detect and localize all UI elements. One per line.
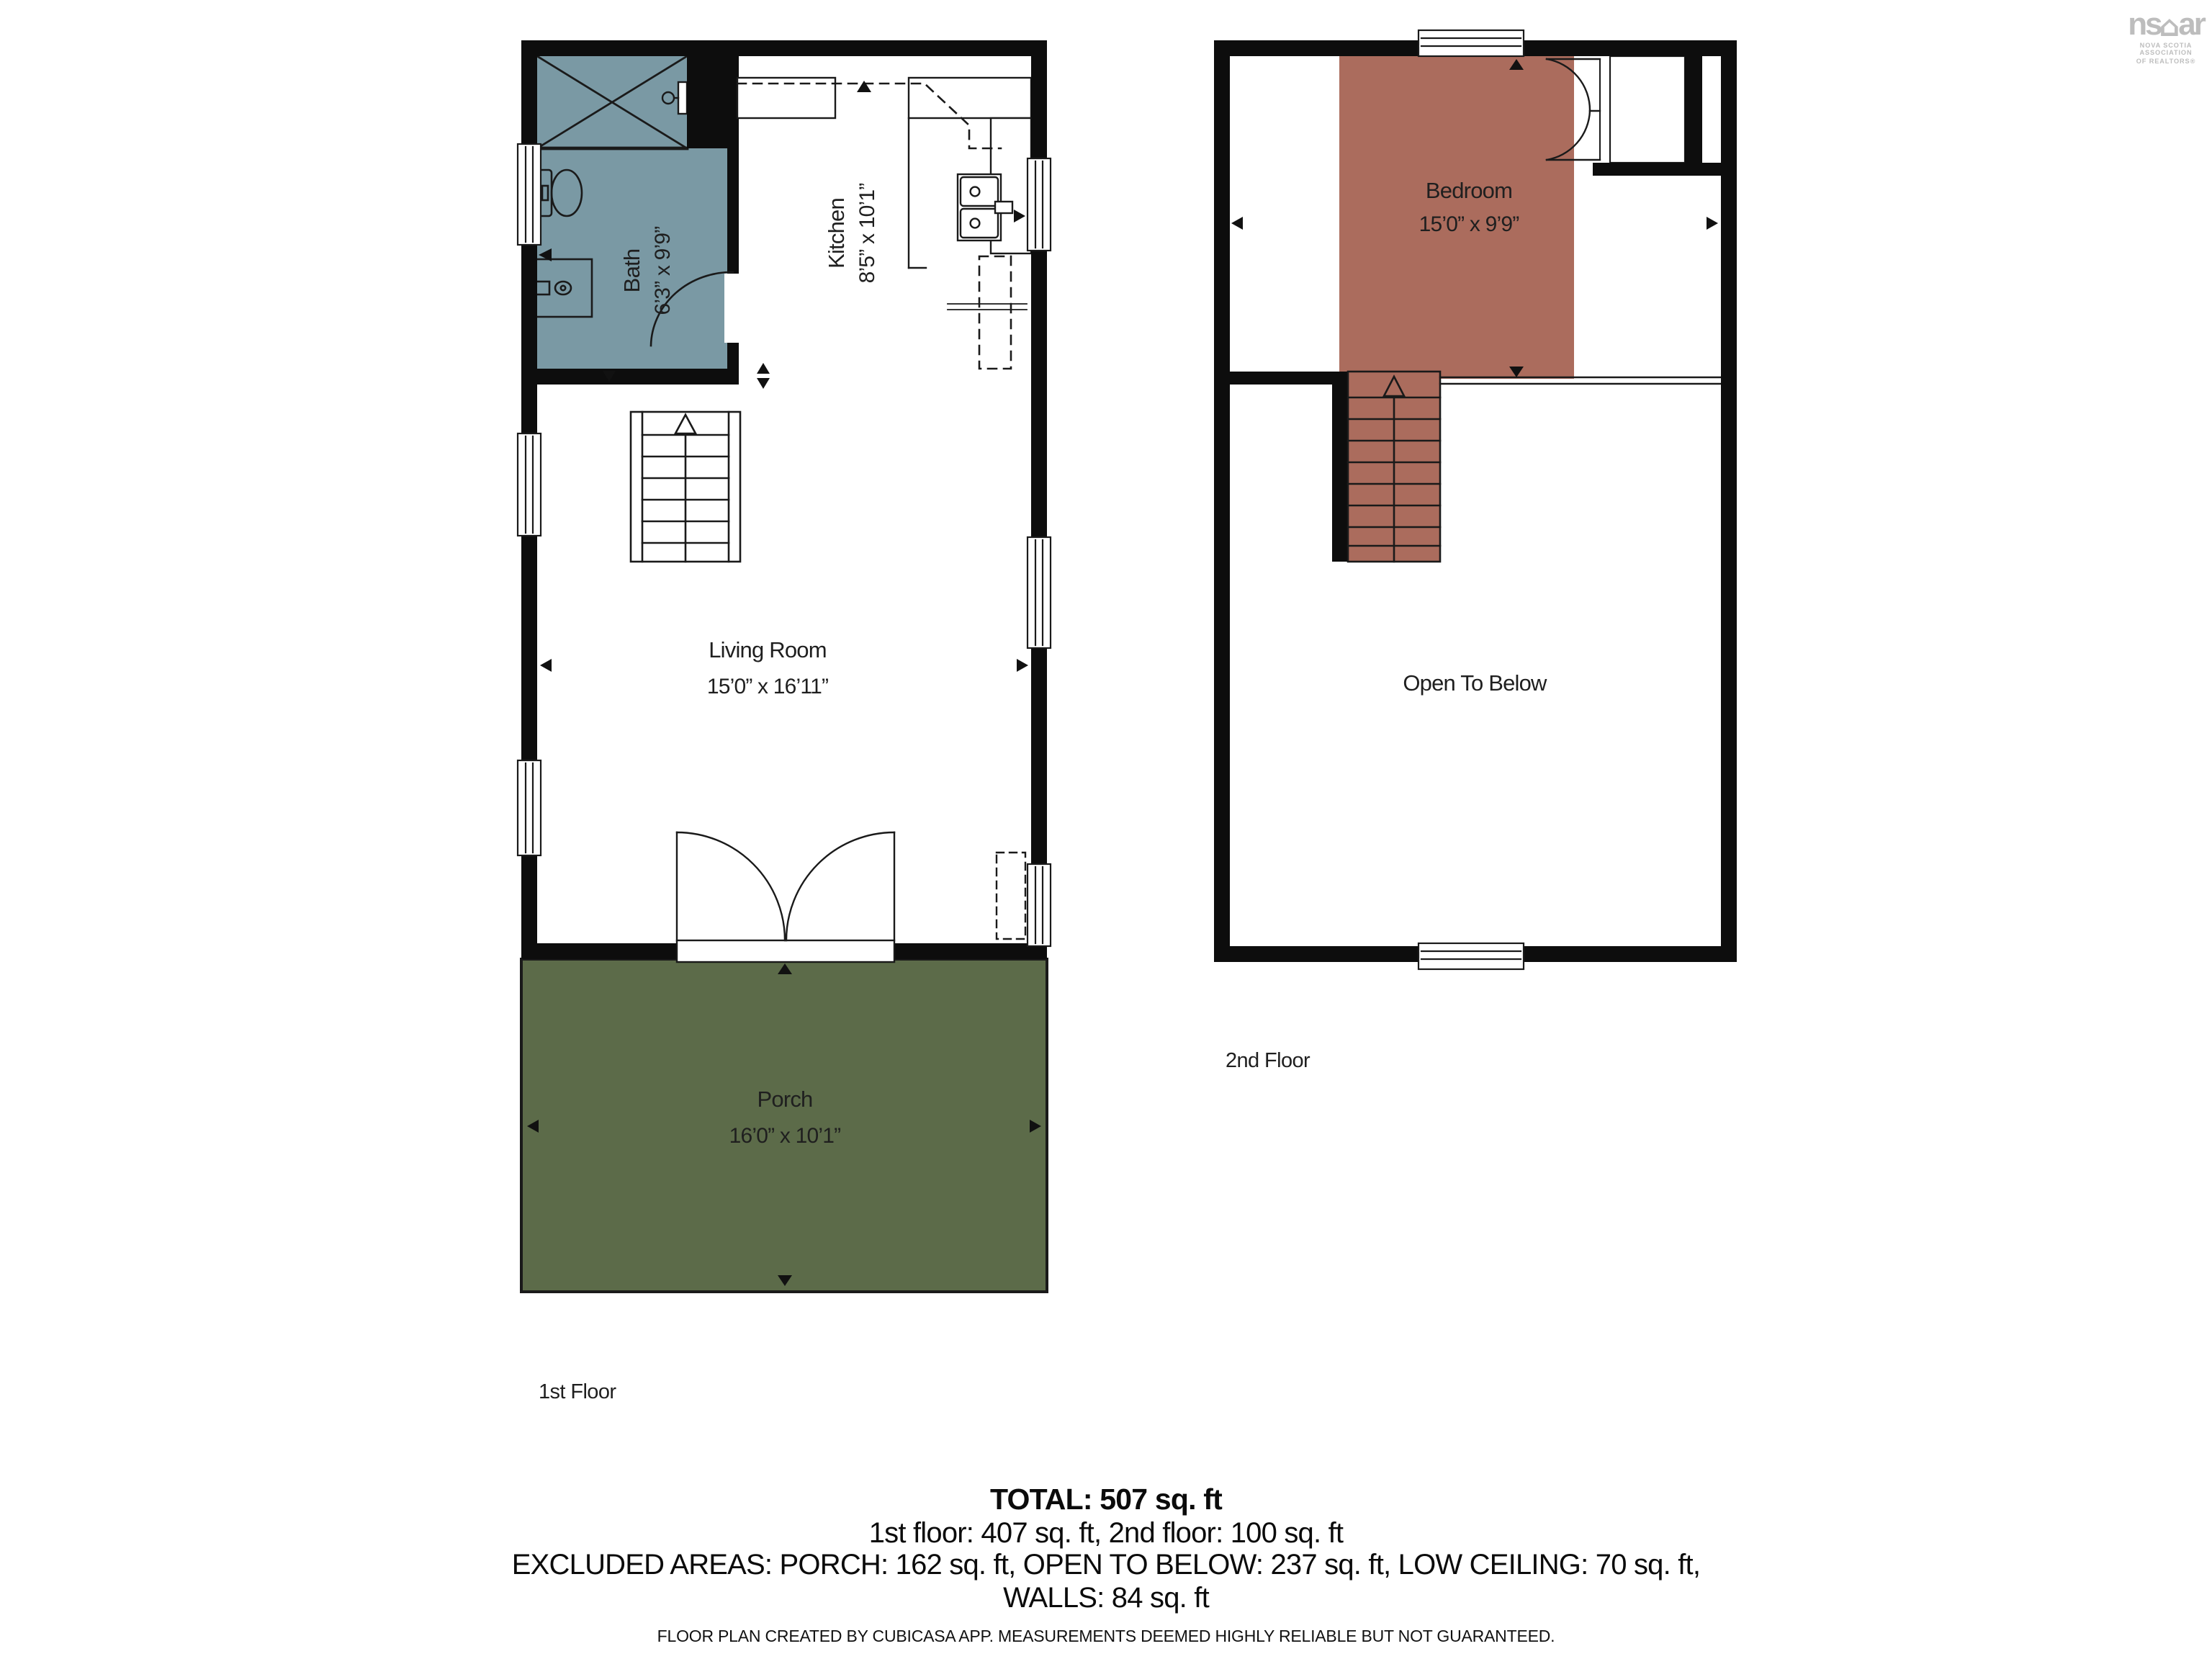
second-floor-plan (1214, 30, 1737, 969)
closet (1547, 56, 1737, 176)
logo-text-left: ns (2128, 10, 2160, 39)
first-floor-label: 1st Floor (539, 1381, 616, 1404)
excluded-areas-line2: WALLS: 84 sq. ft (0, 1582, 2212, 1614)
porch-label: Porch (757, 1085, 813, 1115)
house-icon: ⌂ (2159, 13, 2180, 39)
nsar-logo-subtext: NOVA SCOTIA ASSOCIATION OF REALTORS® (2114, 42, 2212, 65)
open-to-below-label: Open To Below (1403, 669, 1546, 699)
living-room-label: Living Room (709, 636, 827, 666)
nsar-logo-brand: ns ⌂ ar (2114, 10, 2212, 39)
kitchen-label: Kitchen 8’5” x 10’1” (822, 184, 883, 284)
logo-subtext-line2: OF REALTORS® (2114, 58, 2212, 66)
bath-door-opening (724, 274, 742, 343)
window (1028, 537, 1051, 648)
staircase-first-floor (631, 412, 740, 562)
excluded-areas-line1: EXCLUDED AREAS: PORCH: 162 sq. ft, OPEN … (0, 1550, 2212, 1582)
window (1419, 30, 1524, 56)
bath-label: Bath 6’3” x 9’9” (618, 227, 678, 315)
window (1028, 158, 1051, 251)
wall (521, 369, 739, 385)
disclaimer: FLOOR PLAN CREATED BY CUBICASA APP. MEAS… (0, 1629, 2212, 1646)
logo-text-right: ar (2178, 10, 2204, 39)
second-floor-label: 2nd Floor (1226, 1050, 1310, 1073)
window (518, 760, 541, 855)
nsar-logo: ns ⌂ ar NOVA SCOTIA ASSOCIATION OF REALT… (2114, 10, 2212, 65)
logo-subtext-line1: NOVA SCOTIA ASSOCIATION (2114, 42, 2212, 58)
window (1419, 943, 1524, 969)
floor-plan-page: Bath 6’3” x 9’9” Kitchen 8’5” x 10’1” Li… (0, 0, 2212, 1659)
total-area: TOTAL: 507 sq. ft (0, 1485, 2212, 1517)
wall (1332, 372, 1348, 562)
room-dims: 8’5” x 10’1” (853, 184, 883, 284)
window (518, 144, 541, 245)
floor-areas: 1st floor: 407 sq. ft, 2nd floor: 100 sq… (0, 1517, 2212, 1550)
window (1028, 864, 1051, 946)
room-dims: 6’3” x 9’9” (648, 227, 678, 315)
area-summary: TOTAL: 507 sq. ft 1st floor: 407 sq. ft,… (0, 1485, 2212, 1646)
bedroom-dims: 15’0” x 9’9” (1419, 210, 1519, 240)
porch-dims: 16’0” x 10’1” (729, 1121, 841, 1151)
room-name: Kitchen (822, 184, 853, 284)
dashed-object (997, 853, 1025, 939)
wall (1230, 372, 1332, 385)
floor-plan-drawing (0, 0, 2212, 1659)
window (518, 433, 541, 536)
double-entry-door (677, 832, 894, 962)
bedroom-label: Bedroom (1426, 176, 1512, 207)
living-room-dims: 15’0” x 16’11” (707, 672, 828, 702)
room-name: Bath (618, 227, 648, 315)
